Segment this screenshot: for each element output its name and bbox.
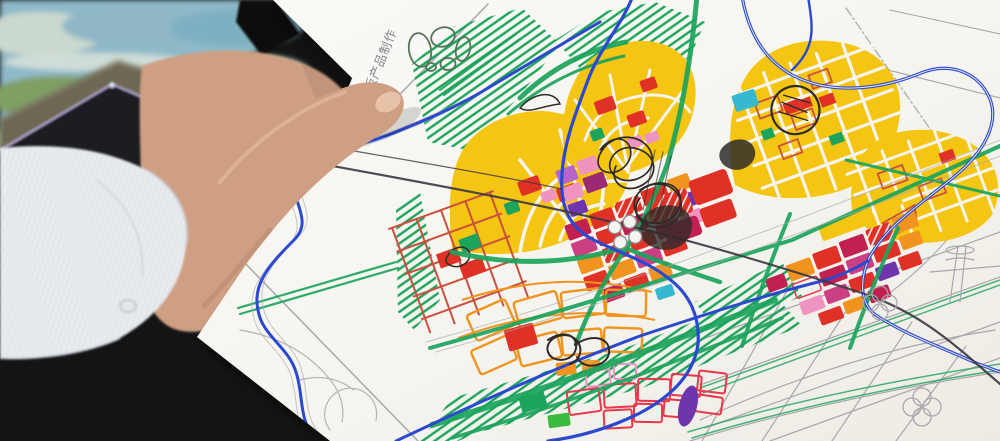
photo-scene: desk 教育版产品制作: [0, 0, 1000, 441]
cuff-button: [120, 300, 136, 312]
